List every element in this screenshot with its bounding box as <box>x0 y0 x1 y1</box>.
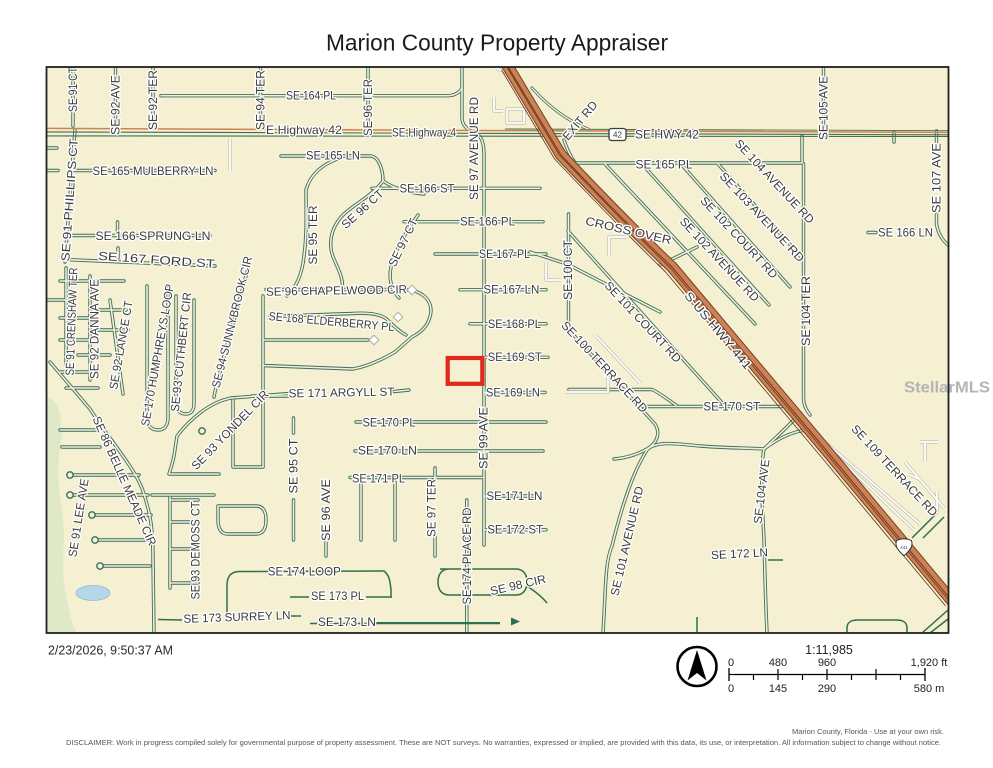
svg-text:580 m: 580 m <box>914 683 945 695</box>
svg-text:SE 173 LN: SE 173 LN <box>318 615 376 629</box>
svg-text:0: 0 <box>728 683 734 695</box>
svg-text:441: 441 <box>900 545 908 550</box>
svg-text:SE 105 AVE: SE 105 AVE <box>817 76 831 140</box>
svg-text:0: 0 <box>728 657 734 669</box>
svg-text:DISCLAIMER: Work in progress c: DISCLAIMER: Work in progress compiled so… <box>66 738 941 747</box>
svg-text:SE 97 AVENUE RD: SE 97 AVENUE RD <box>467 97 481 200</box>
svg-text:SE 171 LN: SE 171 LN <box>486 489 542 503</box>
svg-text:SE 170 PL: SE 170 PL <box>363 416 416 430</box>
svg-text:Marion County, Florida - Use a: Marion County, Florida - Use at your own… <box>792 727 944 736</box>
svg-text:Marion County Property Apprais: Marion County Property Appraiser <box>326 30 668 56</box>
svg-text:SE 94 TER: SE 94 TER <box>254 70 268 130</box>
svg-text:SE 171 ARGYLL ST: SE 171 ARGYLL ST <box>288 385 394 401</box>
svg-text:SE 100 CT: SE 100 CT <box>561 240 575 300</box>
svg-text:SE 92 TER: SE 92 TER <box>146 70 160 130</box>
svg-text:1,920 ft: 1,920 ft <box>911 657 948 669</box>
svg-text:145: 145 <box>769 683 787 695</box>
svg-text:SE 93 DEMOSS CT: SE 93 DEMOSS CT <box>189 502 203 600</box>
svg-text:290: 290 <box>818 683 836 695</box>
svg-text:SE 96 CHAPELWOOD CIR: SE 96 CHAPELWOOD CIR <box>266 282 407 298</box>
svg-text:SE 167 LN: SE 167 LN <box>483 283 539 297</box>
svg-text:SE 96 AVE: SE 96 AVE <box>319 479 333 541</box>
svg-text:SE 95 CT: SE 95 CT <box>287 439 301 494</box>
svg-text:SE 96 TER: SE 96 TER <box>361 79 375 136</box>
svg-text:SE 167 PL: SE 167 PL <box>479 247 530 261</box>
svg-text:SE 173 PL: SE 173 PL <box>311 589 364 603</box>
svg-text:SE 107 AVE: SE 107 AVE <box>930 143 944 213</box>
svg-text:SE 92 AVE: SE 92 AVE <box>109 75 123 135</box>
svg-text:SE 166 LN: SE 166 LN <box>878 226 933 240</box>
svg-text:SE 170 LN: SE 170 LN <box>358 443 417 457</box>
svg-text:1:11,985: 1:11,985 <box>805 643 853 657</box>
svg-text:SE 166 SPRUNG LN: SE 166 SPRUNG LN <box>96 229 211 243</box>
svg-text:SE 97 TER: SE 97 TER <box>425 479 439 537</box>
svg-text:960: 960 <box>818 657 836 669</box>
svg-text:SE 166 PL: SE 166 PL <box>460 215 515 229</box>
svg-text:SE 174 PLACE RD: SE 174 PLACE RD <box>460 508 474 605</box>
svg-text:SE 169 ST: SE 169 ST <box>488 350 542 364</box>
svg-text:StellarMLS: StellarMLS <box>904 380 990 397</box>
svg-text:480: 480 <box>769 657 787 669</box>
svg-text:SE 164 PL: SE 164 PL <box>286 89 336 103</box>
svg-text:SE 165 MULBERRY LN: SE 165 MULBERRY LN <box>93 164 214 178</box>
svg-text:SE 166 ST: SE 166 ST <box>400 181 455 195</box>
svg-text:SE 170 ST: SE 170 ST <box>703 400 760 414</box>
svg-text:SE 172 LN: SE 172 LN <box>711 545 769 562</box>
svg-text:SE 92 DANNA AVE: SE 92 DANNA AVE <box>88 279 102 379</box>
svg-text:SE 171 PL: SE 171 PL <box>352 471 405 485</box>
svg-text:SE 95 TER: SE 95 TER <box>306 206 320 265</box>
svg-text:SE HWY 42: SE HWY 42 <box>635 128 699 142</box>
svg-text:42: 42 <box>613 131 622 140</box>
svg-text:SE 174 LOOP: SE 174 LOOP <box>268 565 341 579</box>
svg-text:SE 91 CT: SE 91 CT <box>66 67 80 112</box>
svg-text:SE 165 PL: SE 165 PL <box>636 158 693 172</box>
svg-text:SE Highway 4: SE Highway 4 <box>392 126 456 140</box>
svg-text:2/23/2026, 9:50:37 AM: 2/23/2026, 9:50:37 AM <box>48 644 173 658</box>
svg-text:SE 172 ST: SE 172 ST <box>487 523 543 537</box>
svg-text:SE 169 LN: SE 169 LN <box>486 385 540 399</box>
svg-text:SE 168 PL: SE 168 PL <box>488 317 541 331</box>
svg-text:SE 165 LN: SE 165 LN <box>306 149 360 163</box>
svg-text:SE 104 TER: SE 104 TER <box>799 276 813 346</box>
svg-text:SE 99 AVE: SE 99 AVE <box>477 407 491 469</box>
svg-text:E Highway 42: E Highway 42 <box>266 123 342 137</box>
